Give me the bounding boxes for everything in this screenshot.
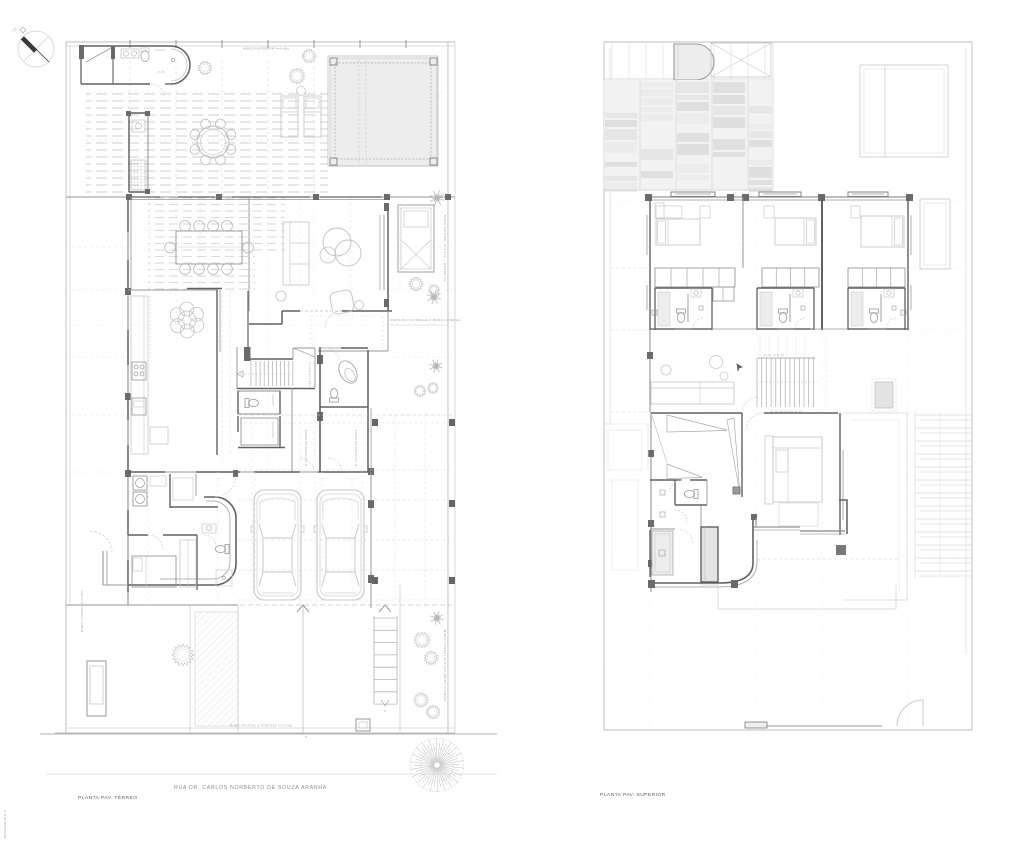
svg-text:MURO/DIV.TA (SEGUE A MURO LATE: MURO/DIV.TA (SEGUE A MURO LATERAL) bbox=[390, 318, 462, 322]
svg-text:P.05: P.05 bbox=[158, 70, 165, 74]
svg-text:MURO LATERAL H=3.11m (MURO VIZ: MURO LATERAL H=3.11m (MURO VIZINHO) bbox=[443, 630, 447, 702]
svg-text:PLANTA PAV. TÉRREO: PLANTA PAV. TÉRREO bbox=[78, 794, 137, 801]
svg-text:LAVABO: LAVABO bbox=[271, 394, 274, 406]
svg-text:14 PRATELEIRAS: 14 PRATELEIRAS bbox=[308, 362, 311, 387]
svg-text:MURO LATERAL H=3.00m: MURO LATERAL H=3.00m bbox=[80, 589, 84, 632]
svg-text:DESPENSA: DESPENSA bbox=[271, 422, 274, 439]
svg-text:MURO LATERAL H=3.11m + GRADE 1: MURO LATERAL H=3.11m + GRADE 1m bbox=[443, 215, 447, 282]
svg-text:MURO POSTERIOR H=4.45m: MURO POSTERIOR H=4.45m bbox=[243, 47, 290, 51]
svg-text:RUA DR. CARLOS NORBERTO DE: RUA DR. CARLOS NORBERTO DE SOUZA ARANHA bbox=[174, 785, 327, 791]
svg-text:14 13 12 11 10: 14 13 12 11 10 bbox=[764, 354, 784, 357]
svg-text:PLANTA PAV. SUPERIOR: PLANTA PAV. SUPERIOR bbox=[600, 792, 666, 798]
svg-text:D. PAVILHÃO DE FOGOS: D. PAVILHÃO DE FOGOS bbox=[355, 429, 358, 466]
svg-text:S: S bbox=[305, 735, 308, 739]
svg-text:RESIDENCIA R.C.: RESIDENCIA R.C. bbox=[3, 808, 7, 838]
svg-text:V: V bbox=[384, 709, 387, 713]
